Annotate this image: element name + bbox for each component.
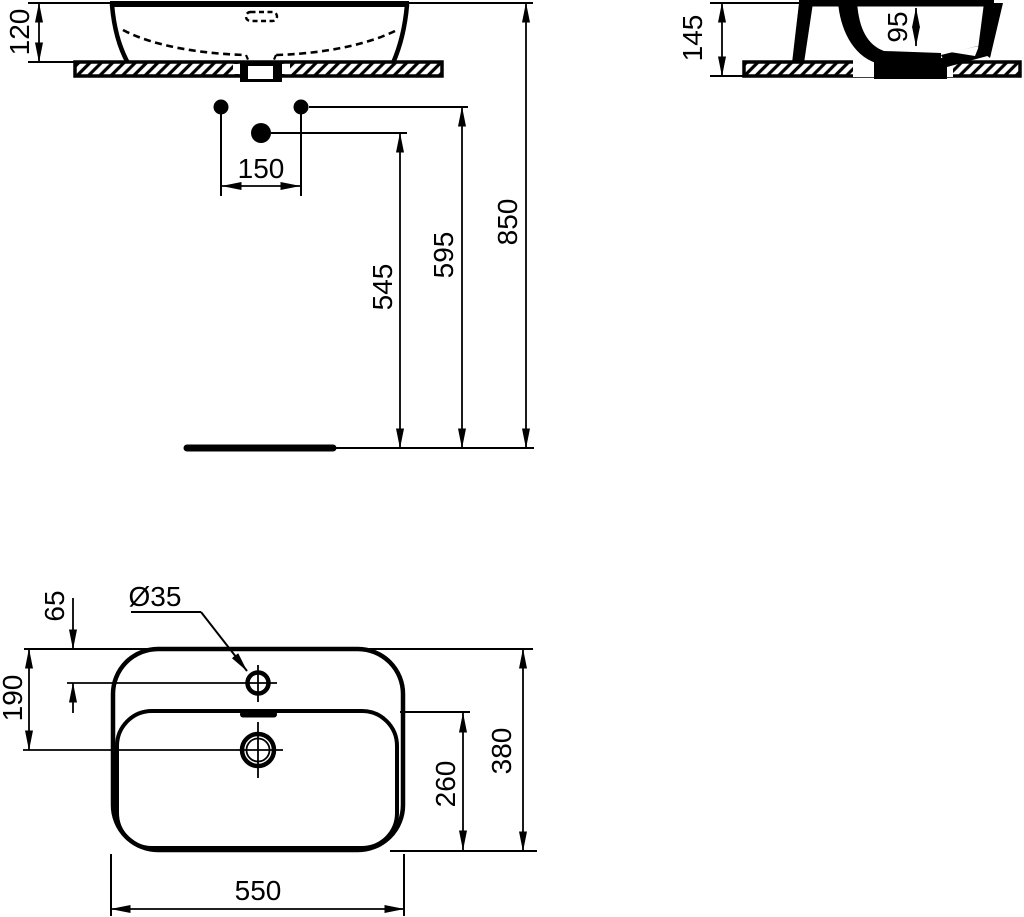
dim-label-150: 150 — [238, 153, 285, 184]
drain-outlet-inner — [248, 66, 273, 79]
basin-left-wall — [112, 5, 128, 63]
basin-right-wall — [393, 5, 407, 63]
dim-150: 150 — [222, 153, 300, 186]
dim-label-545: 545 — [367, 264, 398, 311]
dim-label-145: 145 — [677, 15, 708, 62]
dim-label-595: 595 — [428, 232, 459, 279]
dim-label-190: 190 — [0, 675, 28, 722]
plan-view: Ø35 65 190 260 380 — [0, 581, 537, 916]
dim-label-850: 850 — [492, 199, 523, 246]
dim-545: 545 — [367, 133, 400, 448]
front-wall-section — [978, 3, 1003, 58]
waste-outlet-point — [251, 123, 271, 143]
dim-label-d35: Ø35 — [129, 581, 182, 612]
dim-595: 595 — [428, 107, 462, 448]
technical-drawing-page: 120 150 545 595 850 — [0, 0, 1024, 917]
dim-65: 65 — [39, 590, 73, 713]
side-view: 145 95 — [677, 0, 1020, 79]
dim-550: 550 — [111, 854, 404, 916]
overflow-slot-plan — [240, 711, 277, 718]
fixing-hole-right — [294, 100, 309, 115]
dim-850: 850 — [492, 3, 526, 448]
overflow-slot-front — [246, 12, 277, 21]
dim-label-120: 120 — [4, 9, 35, 56]
dim-label-65: 65 — [39, 590, 70, 621]
bowl-hidden-left — [123, 30, 246, 55]
dim-label-380: 380 — [486, 728, 517, 775]
dim-label-260: 260 — [430, 761, 461, 808]
dim-label-95: 95 — [882, 11, 913, 42]
rim-section — [799, 0, 994, 7]
dim-95: 95 — [882, 8, 916, 46]
bowl-hidden-right — [276, 31, 395, 55]
dim-120: 120 — [4, 3, 39, 62]
dim-380: 380 — [486, 649, 523, 851]
hatch-gap-right — [281, 64, 290, 74]
back-wall-section — [792, 3, 813, 63]
dim-190: 190 — [0, 649, 29, 750]
washbasin-dimension-drawing: 120 150 545 595 850 — [0, 0, 1024, 917]
dim-260: 260 — [400, 712, 470, 850]
fixing-hole-left — [214, 100, 229, 115]
dim-145: 145 — [677, 3, 722, 76]
dim-label-550: 550 — [235, 875, 282, 906]
front-view: 120 150 545 595 850 — [4, 3, 534, 448]
